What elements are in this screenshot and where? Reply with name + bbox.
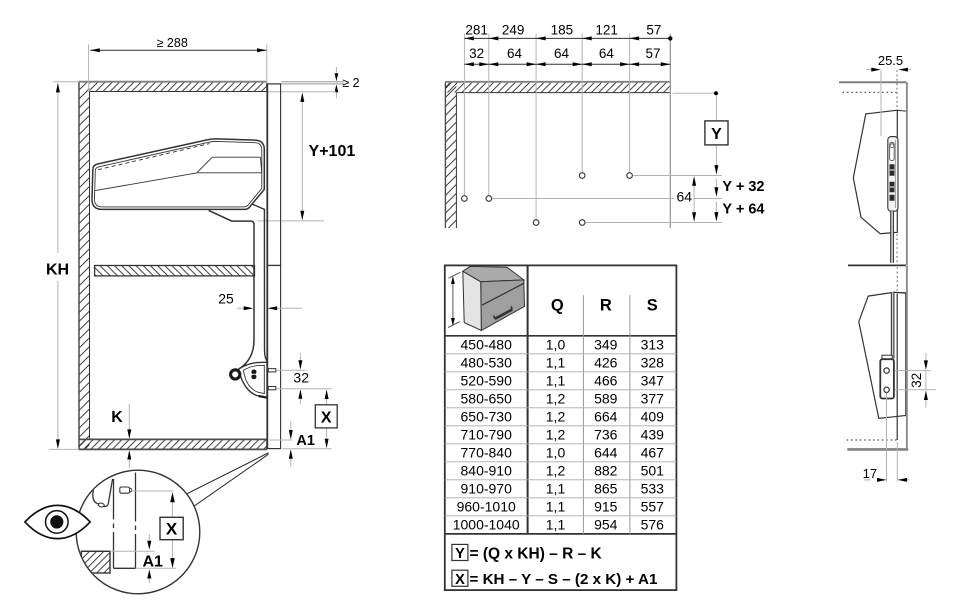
- svg-text:1,0: 1,0: [546, 444, 566, 460]
- svg-text:770-840: 770-840: [461, 444, 513, 460]
- svg-text:313: 313: [641, 336, 665, 352]
- svg-text:A1: A1: [296, 433, 315, 449]
- svg-text:25.5: 25.5: [878, 53, 903, 68]
- svg-text:57: 57: [646, 22, 661, 37]
- svg-text:409: 409: [641, 408, 665, 424]
- svg-text:R: R: [600, 296, 612, 314]
- svg-text:Y+101: Y+101: [309, 143, 356, 160]
- svg-text:1,2: 1,2: [546, 426, 566, 442]
- svg-text:1,2: 1,2: [546, 462, 566, 478]
- svg-text:644: 644: [594, 444, 618, 460]
- svg-text:Q: Q: [551, 296, 564, 314]
- svg-text:64: 64: [677, 188, 693, 204]
- svg-text:520-590: 520-590: [461, 372, 513, 388]
- svg-text:467: 467: [641, 444, 665, 460]
- svg-text:32: 32: [909, 373, 924, 388]
- svg-text:960-1010: 960-1010: [457, 498, 516, 514]
- svg-text:Y + 64: Y + 64: [722, 202, 764, 218]
- svg-text:736: 736: [594, 426, 618, 442]
- svg-text:64: 64: [599, 46, 615, 61]
- svg-text:A1: A1: [143, 554, 164, 571]
- svg-text:954: 954: [594, 516, 618, 532]
- svg-text:347: 347: [641, 372, 665, 388]
- svg-text:S: S: [647, 296, 658, 314]
- svg-text:32: 32: [469, 46, 484, 61]
- svg-text:915: 915: [594, 498, 618, 514]
- svg-text:580-650: 580-650: [461, 390, 513, 406]
- svg-text:= (Q x KH) – R – K: = (Q x KH) – R – K: [470, 546, 603, 563]
- svg-text:557: 557: [641, 498, 665, 514]
- svg-text:57: 57: [645, 46, 660, 61]
- svg-text:281: 281: [465, 22, 488, 37]
- svg-text:377: 377: [641, 390, 665, 406]
- svg-text:185: 185: [551, 22, 574, 37]
- svg-text:25: 25: [218, 291, 234, 307]
- svg-text:480-530: 480-530: [461, 354, 513, 370]
- svg-text:840-910: 840-910: [461, 462, 513, 478]
- svg-text:121: 121: [595, 22, 618, 37]
- svg-text:349: 349: [594, 336, 618, 352]
- svg-text:910-970: 910-970: [461, 480, 513, 496]
- svg-text:1,0: 1,0: [546, 336, 566, 352]
- svg-text:1000-1040: 1000-1040: [453, 516, 520, 532]
- svg-text:450-480: 450-480: [461, 336, 513, 352]
- svg-text:1,1: 1,1: [546, 354, 566, 370]
- svg-text:32: 32: [293, 369, 309, 385]
- svg-text:501: 501: [641, 462, 665, 478]
- svg-text:≥ 2: ≥ 2: [342, 76, 359, 90]
- svg-text:≥ 288: ≥ 288: [157, 36, 188, 50]
- svg-text:X: X: [166, 520, 178, 539]
- svg-text:= KH – Y – S – (2 x K) + A1: = KH – Y – S – (2 x K) + A1: [470, 571, 659, 588]
- svg-text:466: 466: [594, 372, 618, 388]
- svg-text:Y + 32: Y + 32: [722, 179, 764, 195]
- svg-text:1,1: 1,1: [546, 516, 566, 532]
- svg-text:882: 882: [594, 462, 618, 478]
- svg-text:865: 865: [594, 480, 618, 496]
- svg-text:1,1: 1,1: [546, 498, 566, 514]
- svg-text:17: 17: [863, 466, 877, 481]
- svg-text:X: X: [321, 410, 332, 427]
- svg-text:Y: Y: [455, 546, 465, 562]
- svg-text:K: K: [111, 409, 123, 426]
- svg-text:328: 328: [641, 354, 665, 370]
- svg-text:KH: KH: [46, 262, 69, 279]
- svg-text:249: 249: [502, 22, 525, 37]
- svg-text:X: X: [455, 572, 465, 588]
- svg-text:Y: Y: [711, 126, 722, 143]
- svg-text:1,1: 1,1: [546, 372, 566, 388]
- svg-text:1,2: 1,2: [546, 390, 566, 406]
- svg-text:664: 664: [594, 408, 618, 424]
- svg-text:710-790: 710-790: [461, 426, 513, 442]
- svg-text:533: 533: [641, 480, 665, 496]
- svg-text:1,2: 1,2: [546, 408, 566, 424]
- svg-text:64: 64: [507, 46, 523, 61]
- svg-text:589: 589: [594, 390, 618, 406]
- svg-text:64: 64: [554, 46, 570, 61]
- svg-text:439: 439: [641, 426, 665, 442]
- svg-text:650-730: 650-730: [461, 408, 513, 424]
- svg-text:576: 576: [641, 516, 665, 532]
- svg-text:1,1: 1,1: [546, 480, 566, 496]
- svg-text:426: 426: [594, 354, 618, 370]
